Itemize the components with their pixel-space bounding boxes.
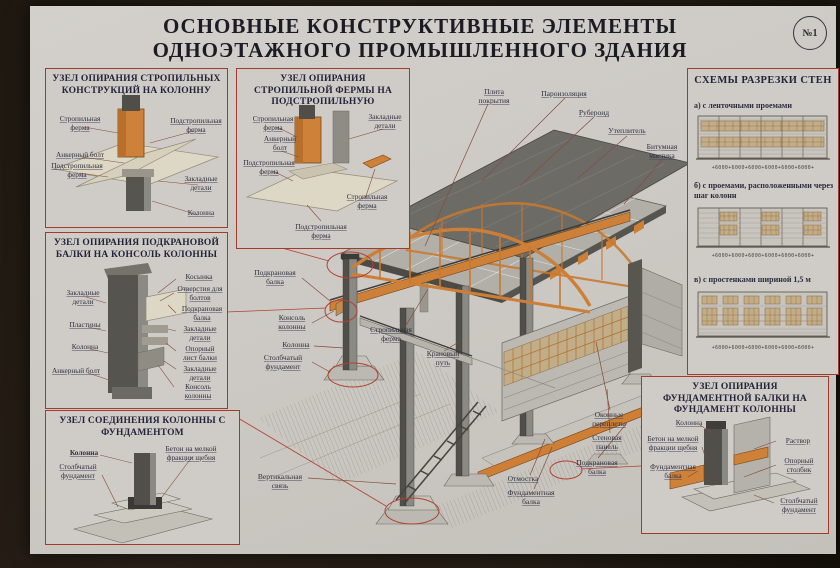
callout-label: Колонна: [66, 343, 104, 352]
poster-title-line1: ОСНОВНЫЕ КОНСТРУКТИВНЫЕ ЭЛЕМЕНТЫ: [70, 14, 770, 38]
callout-label: Анкерный болт: [261, 135, 299, 152]
node-box-foundation-beam: УЗЕЛ ОПИРАНИЯ ФУНДАМЕНТНОЙ БАЛКИ НА ФУНД…: [641, 376, 829, 534]
node-box-title: УЗЕЛ ОПИРАНИЯ ПОДКРАНОВОЙ БАЛКИ НА КОНСО…: [51, 238, 222, 261]
scheme-a-drawing: [696, 113, 830, 163]
callout-label: Закладные детали: [363, 113, 407, 130]
callout-label: Косынка: [178, 273, 220, 282]
callout-label: Стропильная ферма: [247, 115, 299, 132]
callout-label: Раствор: [778, 437, 818, 446]
callout-blind-area: Отмостка: [502, 475, 544, 484]
poster-title: ОСНОВНЫЕ КОНСТРУКТИВНЫЕ ЭЛЕМЕНТЫ ОДНОЭТА…: [70, 14, 770, 62]
callout-label: Бетон на мелкой фракции щебня: [642, 435, 704, 452]
scheme-v-caption: в) с простенками шириной 1,5 м: [694, 275, 834, 285]
callout-label: Закладные детали: [178, 365, 222, 382]
callout-label: Колонна: [64, 449, 104, 458]
node-box-truss-on-column: УЗЕЛ ОПИРАНИЯ СТРОПИЛЬНЫХ КОНСТРУКЦИЙ НА…: [45, 68, 228, 228]
callout-crane-beam-2: Подкрановая балка: [568, 459, 626, 477]
node-box-truss-on-subtruss: УЗЕЛ ОПИРАНИЯ СТРОПИЛЬНОЙ ФЕРМЫ НА ПОДСТ…: [236, 68, 410, 249]
callout-label: Подстропильная ферма: [289, 223, 353, 240]
callout-insulation: Утеплитель: [602, 127, 652, 136]
callout-label: Опорный лист балки: [178, 345, 222, 362]
scheme-a-caption: а) с ленточными проемами: [694, 101, 834, 111]
callout-label: Подстропильная ферма: [239, 159, 299, 176]
callout-label: Подкрановая балка: [178, 305, 226, 322]
scheme-a-dimensions: +6000+6000+6000+6000+6000+6000+: [696, 165, 830, 171]
callout-label: Закладные детали: [178, 175, 224, 192]
poster-title-line2: ОДНОЭТАЖНОГО ПРОМЫШЛЕННОГО ЗДАНИЯ: [70, 38, 770, 62]
wall-schemes-panel: СХЕМЫ РАЗРЕЗКИ СТЕН а) с ленточными прое…: [687, 68, 839, 375]
callout-label: Фундаментная балка: [646, 463, 700, 480]
callout-label: Опорный столбик: [778, 457, 820, 474]
callout-foundation-beam: Фундаментная балка: [502, 489, 560, 507]
callout-crane-track: Крановый путь: [422, 350, 464, 368]
corner-column: [628, 259, 642, 373]
callout-label: Подстропильная ферма: [168, 117, 224, 134]
callout-label: Пластины: [64, 321, 106, 330]
callout-label: Стропильная ферма: [54, 115, 106, 132]
callout-roof-slab: Плита покрытия: [470, 88, 518, 106]
callout-label: Отверстия для болтов: [176, 285, 224, 302]
callout-label: Закладные детали: [178, 325, 222, 342]
callout-label: Стропильная ферма: [341, 193, 393, 210]
callout-label: Анкерный болт: [52, 151, 108, 160]
sheet-number-badge: №1: [793, 16, 827, 50]
scheme-v-dimensions: +6000+6000+6000+6000+6000+6000+: [696, 345, 830, 351]
scheme-v-drawing: [696, 289, 830, 341]
node-box-title: УЗЕЛ ОПИРАНИЯ ФУНДАМЕНТНОЙ БАЛКИ НА ФУНД…: [647, 382, 823, 417]
callout-label: Столбчатый фундамент: [776, 497, 822, 514]
node-box-crane-beam-on-corbel: УЗЕЛ ОПИРАНИЯ ПОДКРАНОВОЙ БАЛКИ НА КОНСО…: [45, 232, 228, 409]
scheme-b-drawing: [696, 205, 830, 251]
callout-label: Колонна: [670, 419, 708, 428]
callout-label: Бетон на мелкой фракции щебня: [156, 445, 226, 462]
callout-label: Колонна: [180, 209, 222, 218]
callout-ruberoid: Рубероид: [571, 109, 617, 118]
callout-label: Подстропильная ферма: [46, 162, 108, 179]
scheme-b-caption: б) с проемами, расположенными через шаг …: [694, 181, 834, 202]
callout-vertical-bracing: Вертикальная связь: [252, 473, 308, 491]
node-box-title: УЗЕЛ ОПИРАНИЯ СТРОПИЛЬНЫХ КОНСТРУКЦИЙ НА…: [51, 74, 222, 97]
callout-label: Закладные детали: [60, 289, 106, 306]
callout-crane-beam: Подкрановая балка: [248, 269, 302, 287]
callout-bitumen-mastic: Битумная мастика: [637, 143, 687, 161]
poster-sheet: ОСНОВНЫЕ КОНСТРУКТИВНЫЕ ЭЛЕМЕНТЫ ОДНОЭТА…: [30, 6, 836, 554]
photo-of-poster: { "poster": { "title_line1": "ОСНОВНЫЕ К…: [0, 0, 840, 568]
scheme-b-dimensions: +6000+6000+6000+6000+6000+6000+: [696, 253, 830, 259]
callout-column: Колонна: [276, 341, 316, 350]
end-wall: [642, 268, 682, 356]
callout-pier-foundation: Столбчатый фундамент: [254, 354, 312, 372]
callout-label: Анкерный болт: [48, 367, 104, 376]
callout-window-sashes: Оконные переплеты: [581, 411, 637, 429]
callout-label: Консоль колонны: [176, 383, 220, 400]
callout-roof-truss: Стропильная ферма: [368, 326, 414, 344]
callout-vapor-barrier: Пароизоляция: [533, 90, 595, 99]
callout-column-corbel: Консоль колонны: [270, 314, 314, 332]
callout-wall-panel: Стеновая панель: [581, 434, 633, 452]
callout-label: Столбчатый фундамент: [52, 463, 104, 480]
wall-schemes-title: СХЕМЫ РАЗРЕЗКИ СТЕН: [688, 75, 838, 86]
node-box-title: УЗЕЛ ОПИРАНИЯ СТРОПИЛЬНОЙ ФЕРМЫ НА ПОДСТ…: [242, 74, 404, 109]
node-box-title: УЗЕЛ СОЕДИНЕНИЯ КОЛОННЫ С ФУНДАМЕНТОМ: [51, 416, 234, 439]
node-box-column-to-foundation: УЗЕЛ СОЕДИНЕНИЯ КОЛОННЫ С ФУНДАМЕНТОМ Ко…: [45, 410, 240, 545]
